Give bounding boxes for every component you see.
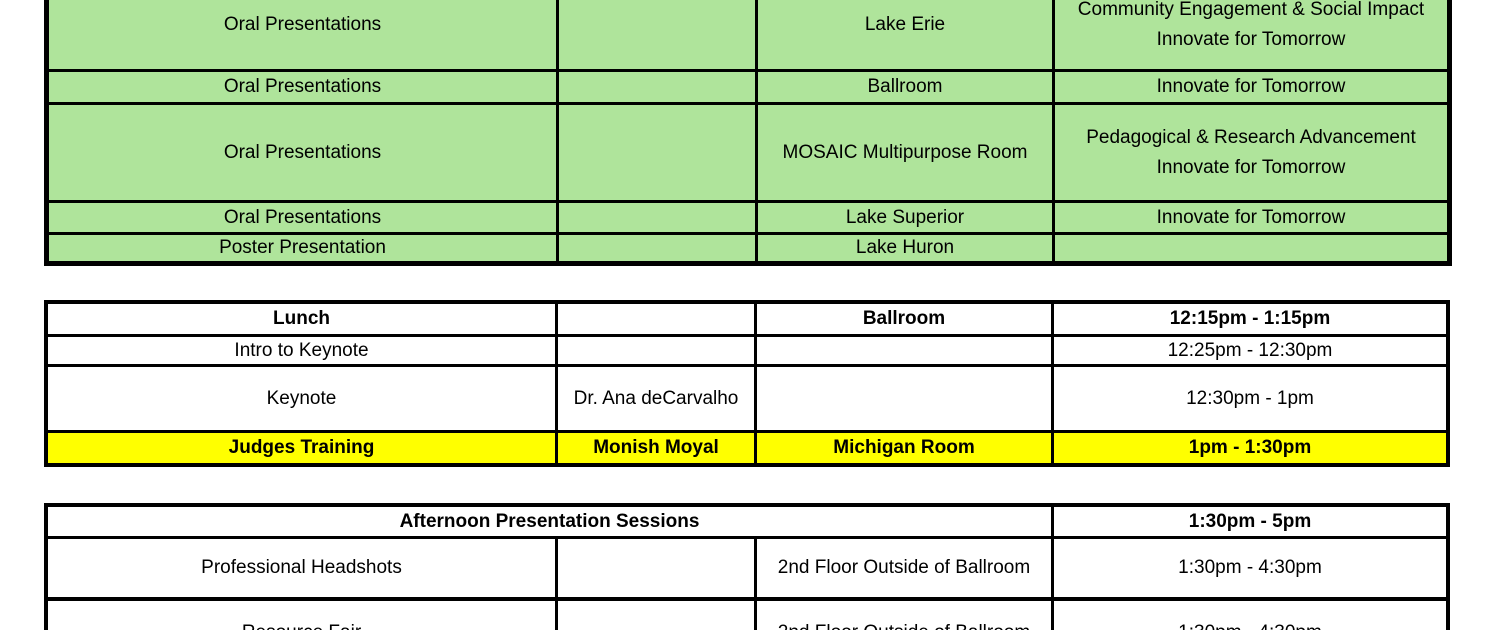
time-cell: 12:15pm - 1:15pm — [1054, 304, 1446, 334]
room-cell: 2nd Floor Outside of Ballroom — [757, 539, 1054, 597]
table-row: Oral Presentations Lake Erie Community E… — [49, 0, 1447, 72]
table-row: Professional Headshots 2nd Floor Outside… — [48, 539, 1446, 601]
morning-sessions-table: Oral Presentations Lake Erie Community E… — [44, 0, 1452, 266]
table-row: Resource Fair 2nd Floor Outside of Ballr… — [48, 601, 1446, 630]
session-cell: Lunch — [48, 304, 558, 334]
presenter-cell — [559, 203, 758, 232]
table-row: Intro to Keynote 12:25pm - 12:30pm — [48, 337, 1446, 367]
session-cell: Oral Presentations — [49, 72, 559, 102]
track-cell: Innovate for Tomorrow — [1055, 72, 1447, 102]
presenter-cell — [559, 0, 758, 69]
presenter-cell — [559, 235, 758, 261]
presenter-cell — [558, 304, 757, 334]
session-cell: Intro to Keynote — [48, 337, 558, 364]
room-cell — [757, 367, 1054, 430]
track-cell — [1055, 235, 1447, 261]
room-cell: Lake Huron — [758, 235, 1055, 261]
session-cell: Oral Presentations — [49, 0, 559, 69]
presenter-cell: Monish Moyal — [558, 433, 757, 463]
session-cell: Judges Training — [48, 433, 558, 463]
table-header-row: Afternoon Presentation Sessions 1:30pm -… — [48, 507, 1446, 539]
time-cell: 1:30pm - 4:30pm — [1054, 601, 1446, 630]
session-cell: Oral Presentations — [49, 105, 559, 200]
table-row: Lunch Ballroom 12:15pm - 1:15pm — [48, 304, 1446, 337]
merged-title-cell: Afternoon Presentation Sessions — [48, 507, 1054, 536]
time-cell: 1:30pm - 4:30pm — [1054, 539, 1446, 597]
room-cell: Michigan Room — [757, 433, 1054, 463]
room-cell: Lake Erie — [758, 0, 1055, 69]
presenter-cell — [559, 105, 758, 200]
time-cell: 1:30pm - 5pm — [1054, 507, 1446, 536]
room-cell: 2nd Floor Outside of Ballroom — [757, 601, 1054, 630]
track-cell: Community Engagement & Social Impact Inn… — [1055, 0, 1447, 69]
table-row: Oral Presentations MOSAIC Multipurpose R… — [49, 105, 1447, 203]
room-cell: Ballroom — [758, 72, 1055, 102]
presenter-cell: Dr. Ana deCarvalho — [558, 367, 757, 430]
table-row: Oral Presentations Ballroom Innovate for… — [49, 72, 1447, 105]
track-cell: Pedagogical & Research Advancement Innov… — [1055, 105, 1447, 200]
table-row: Oral Presentations Lake Superior Innovat… — [49, 203, 1447, 235]
presenter-cell — [558, 601, 757, 630]
presenter-cell — [558, 337, 757, 364]
table-row highlighted-row: Judges Training Monish Moyal Michigan Ro… — [48, 433, 1446, 463]
midday-schedule-table: Lunch Ballroom 12:15pm - 1:15pm Intro to… — [44, 300, 1450, 467]
track-cell: Innovate for Tomorrow — [1055, 203, 1447, 232]
presenter-cell — [559, 72, 758, 102]
presenter-cell — [558, 539, 757, 597]
session-cell: Oral Presentations — [49, 203, 559, 232]
room-cell: Lake Superior — [758, 203, 1055, 232]
room-cell: MOSAIC Multipurpose Room — [758, 105, 1055, 200]
time-cell: 1pm - 1:30pm — [1054, 433, 1446, 463]
time-cell: 12:25pm - 12:30pm — [1054, 337, 1446, 364]
session-cell: Poster Presentation — [49, 235, 559, 261]
session-cell: Professional Headshots — [48, 539, 558, 597]
time-cell: 12:30pm - 1pm — [1054, 367, 1446, 430]
session-cell: Resource Fair — [48, 601, 558, 630]
afternoon-sessions-table: Afternoon Presentation Sessions 1:30pm -… — [44, 503, 1450, 630]
room-cell: Ballroom — [757, 304, 1054, 334]
table-row: Poster Presentation Lake Huron — [49, 235, 1447, 261]
schedule-page: Oral Presentations Lake Erie Community E… — [0, 0, 1500, 630]
room-cell — [757, 337, 1054, 364]
session-cell: Keynote — [48, 367, 558, 430]
table-row: Keynote Dr. Ana deCarvalho 12:30pm - 1pm — [48, 367, 1446, 433]
